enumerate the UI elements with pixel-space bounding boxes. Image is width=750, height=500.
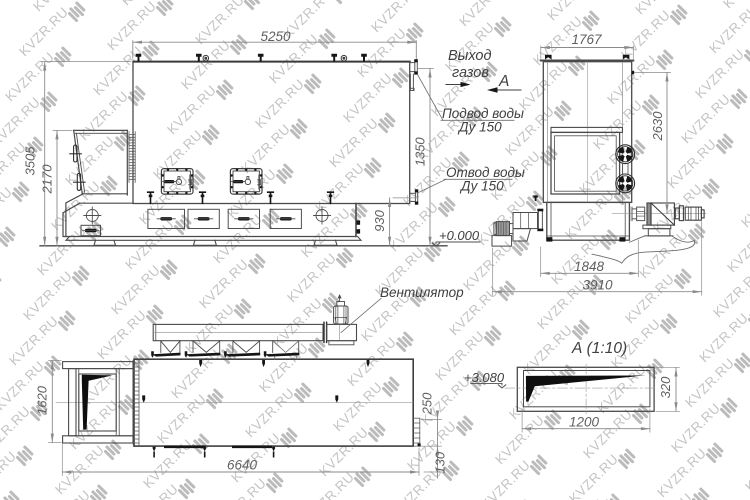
- svg-text:1350: 1350: [413, 137, 428, 167]
- svg-text:3910: 3910: [582, 277, 613, 292]
- svg-text:2630: 2630: [650, 111, 665, 142]
- svg-text:1620: 1620: [34, 385, 49, 415]
- svg-text:Выход: Выход: [448, 48, 492, 64]
- svg-text:Вентилятор: Вентилятор: [380, 285, 464, 300]
- svg-text:130: 130: [433, 451, 448, 473]
- svg-text:320: 320: [658, 376, 673, 398]
- svg-text:А (1:10): А (1:10): [571, 340, 627, 357]
- svg-text:6640: 6640: [227, 458, 258, 473]
- svg-text:2170: 2170: [40, 164, 55, 195]
- svg-text:Ду 150: Ду 150: [457, 120, 502, 135]
- svg-text:930: 930: [372, 209, 387, 231]
- svg-text:1767: 1767: [571, 32, 602, 47]
- svg-text:Ду 150: Ду 150: [459, 179, 504, 194]
- svg-text:+3.080: +3.080: [464, 370, 505, 385]
- svg-text:+0.000: +0.000: [439, 228, 480, 243]
- svg-text:5250: 5250: [260, 29, 291, 44]
- svg-text:1848: 1848: [574, 259, 605, 274]
- svg-text:газов: газов: [452, 65, 489, 81]
- svg-text:1200: 1200: [569, 414, 600, 429]
- svg-text:250: 250: [420, 392, 435, 415]
- svg-text:А: А: [498, 73, 509, 90]
- svg-text:3505: 3505: [23, 146, 38, 176]
